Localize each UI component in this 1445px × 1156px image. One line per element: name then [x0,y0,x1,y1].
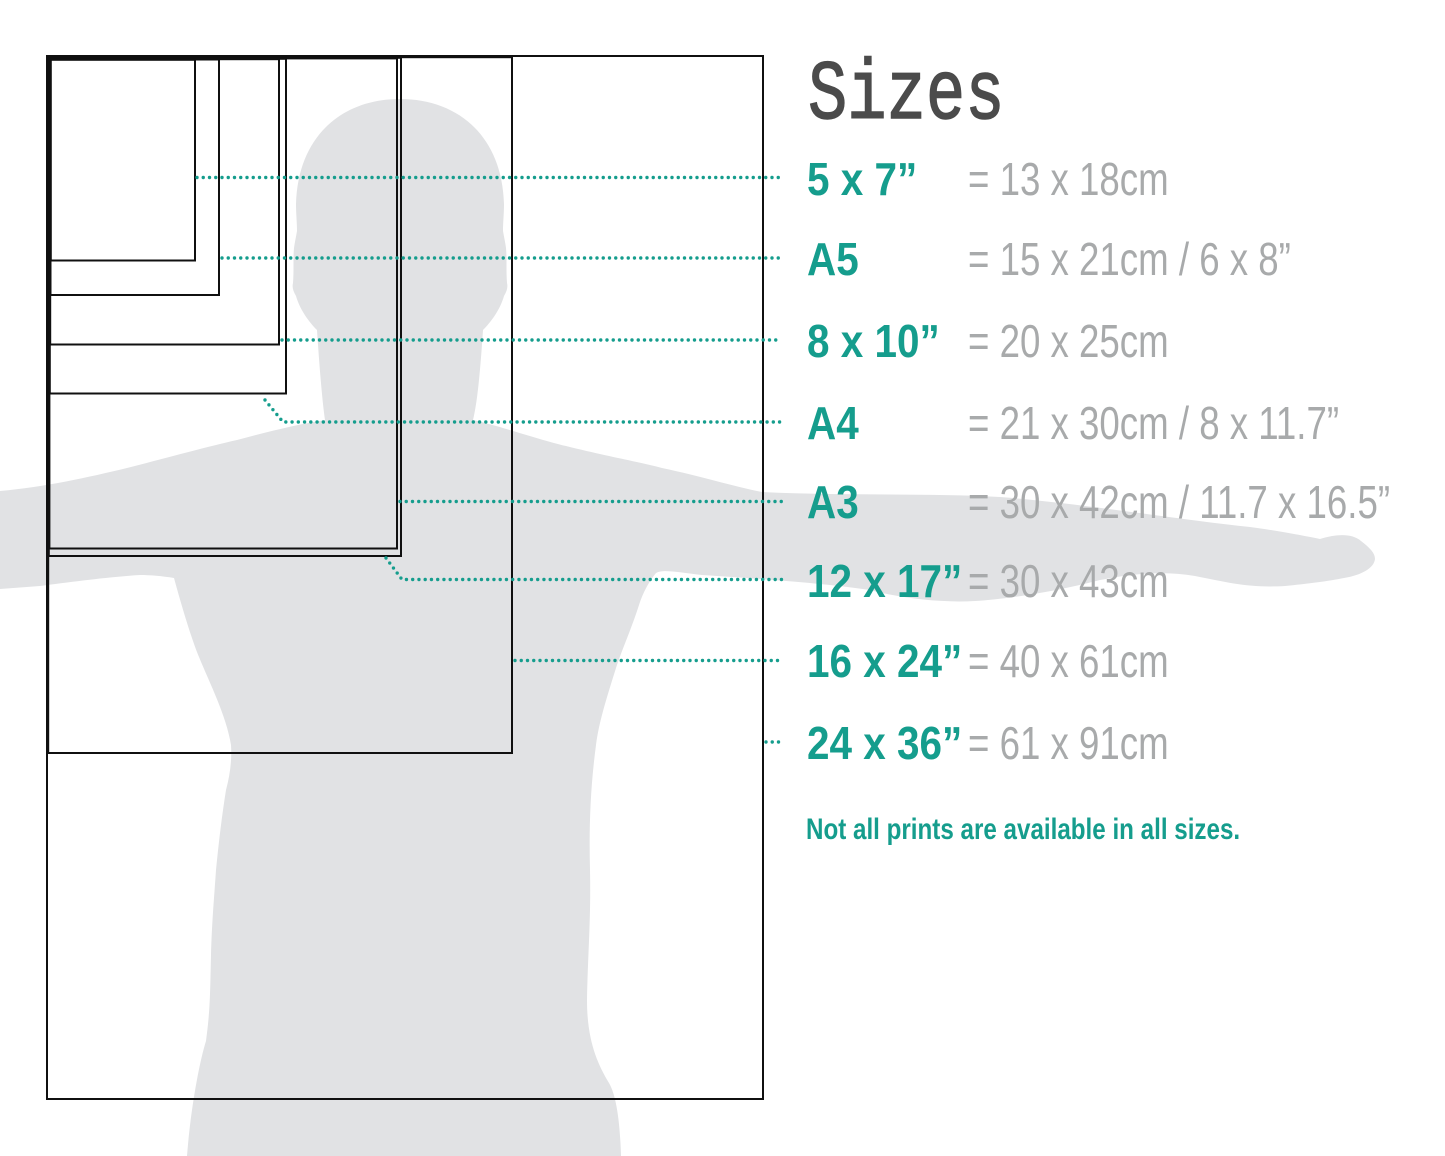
svg-text:5 x 7”: 5 x 7” [807,155,917,206]
svg-text:12 x 17”: 12 x 17” [807,557,962,608]
svg-text:Sizes: Sizes [808,48,1005,144]
svg-text:= 40 x 61cm: = 40 x 61cm [968,635,1169,687]
svg-text:A3: A3 [807,478,859,529]
svg-text:= 61 x 91cm: = 61 x 91cm [968,717,1169,769]
svg-text:= 20 x 25cm: = 20 x 25cm [968,315,1169,367]
svg-text:8 x 10”: 8 x 10” [807,317,940,368]
svg-text:16 x 24”: 16 x 24” [807,637,962,688]
svg-text:Not all prints are available i: Not all prints are available in all size… [806,813,1240,846]
svg-text:A4: A4 [807,399,859,450]
svg-text:24 x 36”: 24 x 36” [807,719,962,770]
svg-text:= 13 x 18cm: = 13 x 18cm [968,153,1169,205]
svg-text:= 30 x 42cm / 11.7 x 16.5”: = 30 x 42cm / 11.7 x 16.5” [968,476,1390,528]
svg-text:= 30 x 43cm: = 30 x 43cm [968,555,1169,607]
svg-text:= 21 x 30cm / 8 x 11.7”: = 21 x 30cm / 8 x 11.7” [968,397,1339,449]
svg-text:= 15 x 21cm / 6 x 8”: = 15 x 21cm / 6 x 8” [968,233,1291,285]
svg-text:A5: A5 [807,235,859,286]
